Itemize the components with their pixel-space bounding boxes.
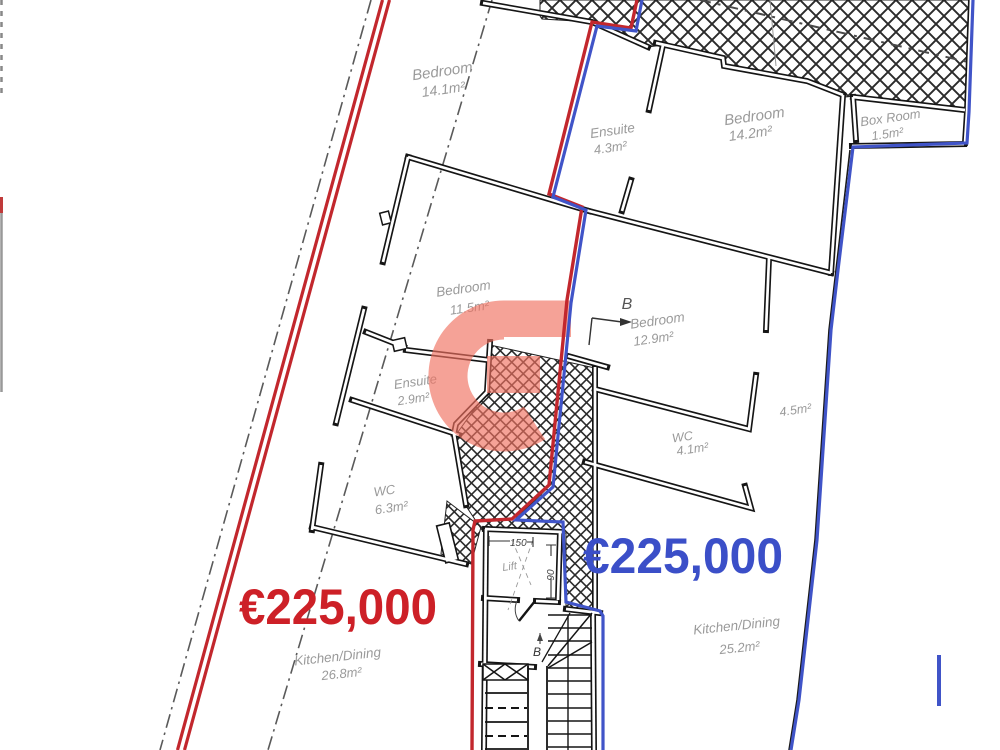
svg-text:B: B <box>622 296 633 313</box>
svg-text:150: 150 <box>510 538 527 549</box>
svg-text:€225,000: €225,000 <box>239 579 437 635</box>
svg-text:B: B <box>533 645 541 659</box>
svg-text:Lift: Lift <box>501 560 518 574</box>
svg-text:€225,000: €225,000 <box>583 528 783 584</box>
svg-text:90: 90 <box>546 569 557 581</box>
svg-text:WC: WC <box>373 482 397 500</box>
